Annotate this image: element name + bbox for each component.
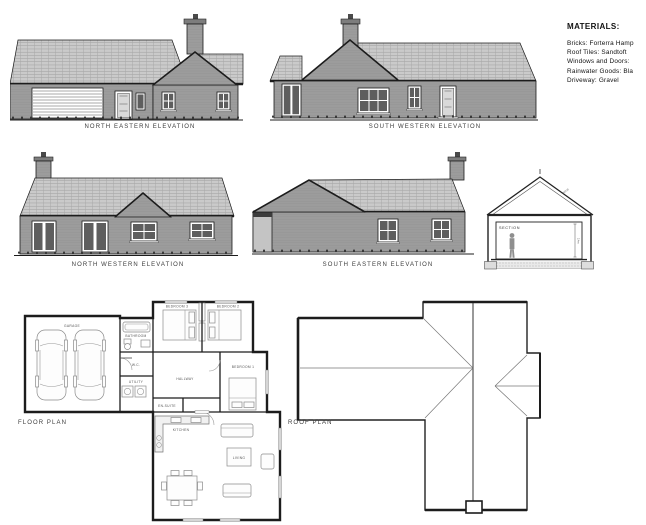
room-label-garage: GARAGE <box>64 324 80 328</box>
materials-line: Rainwater Goods: Bla <box>567 67 646 76</box>
materials-line: Windows and Doors: <box>567 57 646 66</box>
side-bay <box>253 213 272 252</box>
room-label-kitchen: KITCHEN <box>173 428 190 432</box>
materials-line: Driveway: Gravel <box>567 76 646 85</box>
bed <box>229 378 256 410</box>
room-label-utility: UTILITY <box>129 380 144 384</box>
floor-plan-drawing: GARAGE BATHROOM W.C. UTILITY BEDROOM 3 B… <box>15 288 283 525</box>
gable-window <box>130 222 159 243</box>
chimney-plan <box>466 501 482 513</box>
window <box>161 92 176 112</box>
window <box>189 222 216 241</box>
car <box>74 330 106 400</box>
bed <box>208 310 241 340</box>
basin <box>141 340 150 347</box>
ne-elevation-label: NORTH EASTERN ELEVATION <box>60 124 220 130</box>
garage-door <box>32 88 103 118</box>
main-roof <box>10 40 188 84</box>
room-label-wc: W.C. <box>132 363 140 367</box>
ridge-note: RIDGE <box>562 188 570 195</box>
roof-plan-label: ROOF PLAN <box>288 420 352 426</box>
sofa <box>221 424 253 437</box>
sw-elevation-drawing <box>268 14 540 126</box>
triple-window <box>357 88 391 115</box>
room-label-hallway: HALLWAY <box>176 377 194 381</box>
materials-line: Bricks: Forterra Hamp <box>567 39 646 48</box>
room-label-bathroom: BATHROOM <box>125 334 146 338</box>
chimney <box>184 14 206 54</box>
entrance-door <box>115 91 132 119</box>
window <box>216 92 231 112</box>
section-drawing: RIDGE SECTION 2.4m <box>481 166 597 274</box>
bath <box>123 322 150 332</box>
se-elevation-label: SOUTH EASTERN ELEVATION <box>298 262 458 268</box>
section-label: SECTION <box>499 226 520 230</box>
chimney <box>34 152 53 180</box>
floor-plan-label: FLOOR PLAN <box>18 420 88 426</box>
sofa <box>223 484 251 497</box>
armchair <box>261 454 274 469</box>
rear-wing-roof <box>270 56 302 81</box>
toilet <box>124 339 131 350</box>
roof-plan-drawing <box>292 298 548 518</box>
sw-elevation-label: SOUTH WESTERN ELEVATION <box>340 124 510 130</box>
washer <box>135 386 146 397</box>
french-door <box>82 221 108 252</box>
room-label-ensuite: EN-SUITE <box>158 404 176 408</box>
nw-elevation-label: NORTH WESTERN ELEVATION <box>48 262 208 268</box>
narrow-window <box>407 86 422 111</box>
room-label-bedroom1: BEDROOM 1 <box>232 365 255 369</box>
french-door <box>282 84 301 116</box>
chimney <box>448 152 466 180</box>
french-door <box>32 221 56 252</box>
materials-note: MATERIALS: Bricks: Forterra Hamp Roof Ti… <box>567 22 646 85</box>
dining-table <box>162 471 203 506</box>
sidelight-window <box>136 93 145 110</box>
drawing-sheet: { "colors": { "paper": "#ffffff", "ink":… <box>0 0 646 525</box>
se-elevation-drawing <box>252 152 477 264</box>
car <box>36 330 68 400</box>
ne-elevation-drawing <box>10 14 245 126</box>
materials-title: MATERIALS: <box>567 22 646 31</box>
window <box>377 219 400 244</box>
materials-line: Roof Tiles: Sandtoft <box>567 48 646 57</box>
window <box>431 219 453 242</box>
room-label-bedroom3: BEDROOM 3 <box>166 305 189 309</box>
bed <box>163 310 196 340</box>
roof-truss <box>487 169 593 215</box>
height-dim-text: 2.4m <box>577 238 580 243</box>
nw-elevation-drawing <box>12 152 240 264</box>
room-label-bedroom2: BEDROOM 2 <box>217 305 240 309</box>
walls <box>274 81 536 118</box>
entrance-door <box>438 86 458 119</box>
roof-outline <box>298 302 540 510</box>
washer <box>122 386 133 397</box>
room-label-living: LIVING <box>233 456 246 460</box>
